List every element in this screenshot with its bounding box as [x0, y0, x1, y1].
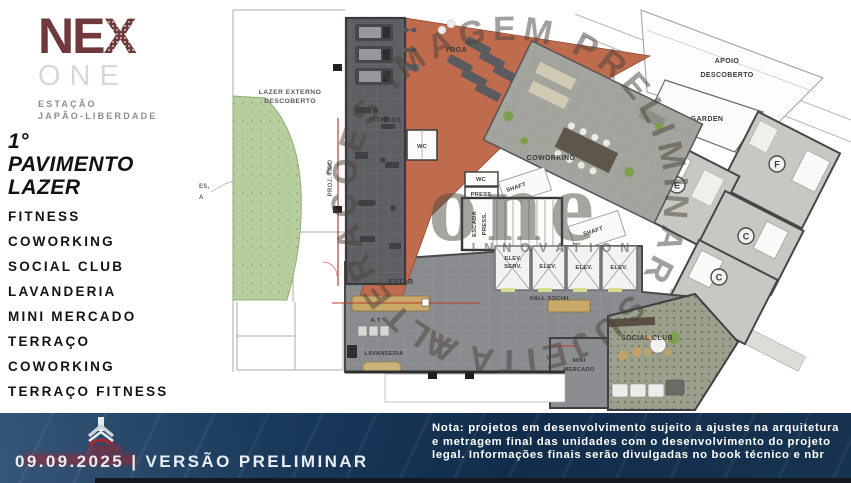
label-wc-fitness: WC	[417, 144, 428, 150]
label-lazer-externo: LAZER EXTERNO	[259, 89, 322, 96]
version-text: VERSÃO PRELIMINAR	[146, 452, 369, 471]
brand-station: ESTAÇÃO JAPÃO-LIBERDADE	[38, 98, 158, 122]
label-lavanderia: LAVANDERIA	[364, 351, 404, 357]
brand-station-line2: JAPÃO-LIBERDADE	[38, 110, 158, 122]
list-item: TERRAÇO	[8, 334, 223, 349]
svg-text:C: C	[716, 273, 723, 283]
label-apoio: DESCOBERTO	[700, 72, 753, 79]
label-elev: ELEV.	[610, 265, 627, 271]
disclaimer-note: Nota: projetos em desenvolvimento sujeit…	[432, 422, 842, 463]
brand-nex-x: X	[103, 12, 134, 60]
list-item: COWORKING	[8, 234, 223, 249]
page-title: 1° PAVIMENTO LAZER	[8, 130, 223, 199]
brand-nex: NEX	[38, 12, 158, 60]
label-social-club: SOCIAL CLUB	[621, 335, 673, 342]
amenities-sidebar: 1° PAVIMENTO LAZER FITNESS COWORKING SOC…	[8, 130, 223, 409]
floor-plan: ES, A LAZER EXTERNO DESCOBERTO APOIO DES…	[195, 0, 851, 416]
date-version-line: 09.09.2025 | VERSÃO PRELIMINAR	[15, 452, 369, 472]
label-elev-serv: SERV.	[504, 264, 522, 270]
label-elev: ELEV.	[539, 264, 556, 270]
unit-circle-f: F	[769, 156, 785, 172]
garden-area	[233, 96, 301, 300]
leader-line	[211, 180, 235, 192]
label-lazer-externo: DESCOBERTO	[264, 98, 316, 105]
edge-note: A	[199, 195, 204, 201]
page-title-line1: 1°	[8, 130, 223, 153]
page-title-line3: LAZER	[8, 176, 223, 199]
brand-station-line1: ESTAÇÃO	[38, 98, 158, 110]
edge-note: ES,	[199, 184, 210, 190]
brand-one: ONE	[38, 60, 158, 92]
list-item: SOCIAL CLUB	[8, 259, 223, 274]
footer-bar: 09.09.2025 | VERSÃO PRELIMINAR Nota: pro…	[0, 413, 851, 483]
svg-text:F: F	[774, 160, 780, 170]
separator: |	[131, 452, 138, 471]
list-item: COWORKING	[8, 359, 223, 374]
page-title-line2: PAVIMENTO	[8, 153, 223, 176]
amenities-list: FITNESS COWORKING SOCIAL CLUB LAVANDERIA…	[8, 209, 223, 399]
list-item: LAVANDERIA	[8, 284, 223, 299]
footer-bottom-strip	[95, 478, 851, 483]
brand-logo: NEX ONE ESTAÇÃO JAPÃO-LIBERDADE	[38, 12, 158, 122]
brand-nex-ne: NE	[38, 8, 103, 64]
unit-circle-c1: C	[738, 228, 754, 244]
list-item: FITNESS	[8, 209, 223, 224]
innovation-watermark: INNOVATION	[472, 241, 639, 255]
slide: NEX ONE ESTAÇÃO JAPÃO-LIBERDADE 1° PAVIM…	[0, 0, 851, 483]
list-item: TERRAÇO FITNESS	[8, 384, 223, 399]
label-apoio: APOIO	[715, 58, 740, 65]
unit-circle-c2: C	[711, 269, 727, 285]
date-text: 09.09.2025	[15, 452, 124, 471]
svg-text:C: C	[743, 232, 750, 242]
list-item: MINI MERCADO	[8, 309, 223, 324]
label-elev: ELEV.	[575, 265, 592, 271]
